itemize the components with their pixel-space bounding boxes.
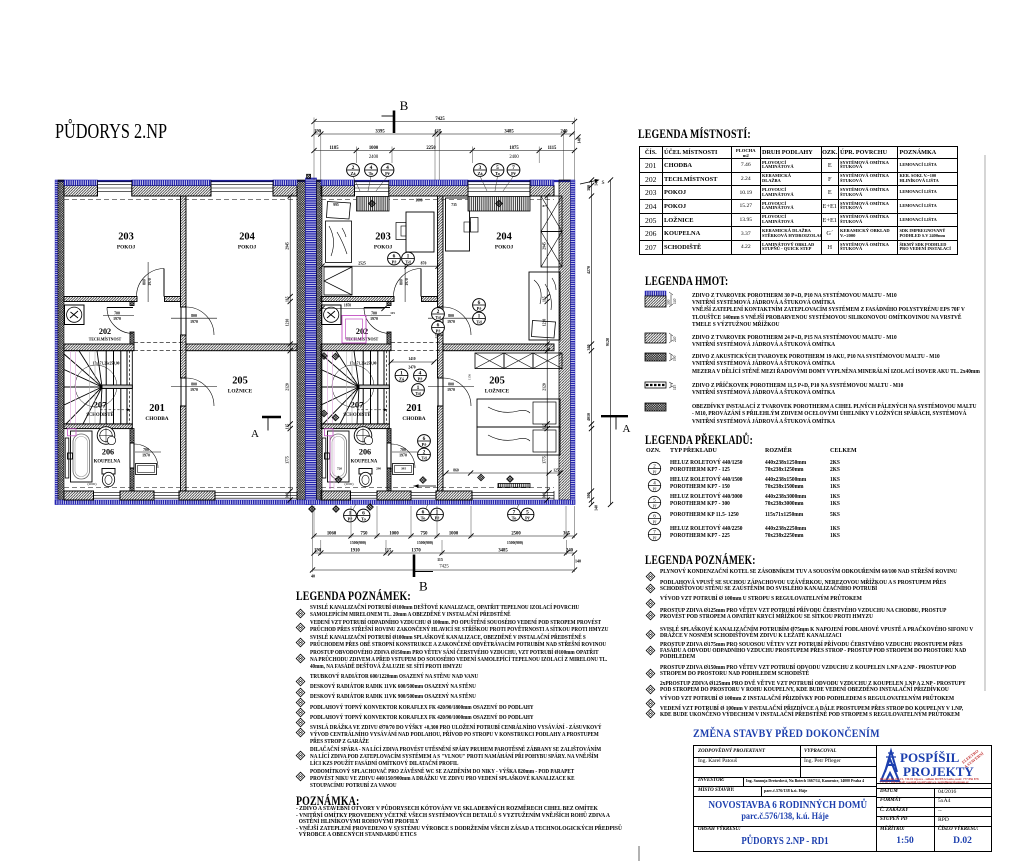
svg-text:1185: 1185	[329, 146, 339, 151]
svg-text:204: 204	[496, 232, 512, 243]
svg-text:To: To	[369, 171, 375, 176]
svg-text:870: 870	[421, 262, 427, 266]
svg-text:3485: 3485	[498, 548, 508, 553]
svg-text:TECH.MÍSTNOST: TECH.MÍSTNOST	[89, 337, 122, 342]
svg-text:115: 115	[673, 384, 677, 389]
svg-text:115: 115	[437, 557, 443, 562]
svg-text:125: 125	[553, 468, 559, 472]
svg-text:7425: 7425	[439, 565, 449, 570]
svg-text:To: To	[495, 171, 501, 176]
svg-text:4010: 4010	[586, 413, 591, 421]
svg-text:115: 115	[390, 311, 395, 315]
svg-text:1: 1	[400, 370, 403, 376]
svg-text:700: 700	[371, 311, 377, 315]
svg-text:17x171,26x250,00: 17x171,26x250,00	[93, 362, 120, 366]
svg-text:1970: 1970	[447, 320, 455, 324]
svg-text:6: 6	[423, 436, 426, 442]
svg-text:700: 700	[114, 311, 120, 315]
svg-text:Př: Př	[653, 504, 657, 509]
svg-text:205: 205	[232, 376, 248, 387]
svg-text:2: 2	[437, 309, 440, 315]
svg-text:800: 800	[448, 314, 454, 318]
svg-text:201: 201	[149, 403, 165, 414]
svg-text:POKOJ: POKOJ	[238, 245, 257, 251]
svg-text:Př: Př	[653, 487, 657, 492]
svg-text:800: 800	[399, 279, 403, 285]
svg-text:203: 203	[375, 232, 391, 243]
svg-text:Př: Př	[348, 517, 353, 522]
svg-text:735: 735	[451, 203, 457, 207]
svg-text:5: 5	[496, 165, 499, 171]
svg-text:1: 1	[417, 385, 420, 391]
svg-text:115: 115	[543, 296, 547, 302]
svg-text:750: 750	[361, 531, 369, 536]
svg-text:1210: 1210	[543, 319, 547, 327]
svg-text:S: S	[601, 180, 604, 186]
svg-text:1000: 1000	[389, 531, 399, 536]
svg-text:115: 115	[286, 424, 290, 430]
svg-text:40: 40	[311, 574, 315, 579]
svg-text:150: 150	[389, 467, 393, 472]
svg-text:290: 290	[376, 466, 381, 470]
svg-text:205: 205	[489, 376, 505, 387]
svg-text:Td: Td	[421, 456, 427, 461]
svg-text:800: 800	[191, 382, 197, 386]
svg-text:300: 300	[586, 493, 591, 499]
svg-text:Př: Př	[422, 442, 427, 447]
svg-text:7: 7	[513, 509, 516, 515]
svg-text:PŮDORYS 2.NP: PŮDORYS 2.NP	[55, 119, 167, 143]
svg-text:SCHODIŠTĚ: SCHODIŠTĚ	[343, 412, 370, 418]
svg-text:115: 115	[385, 548, 392, 553]
svg-text:Př: Př	[653, 519, 657, 524]
svg-text:800: 800	[448, 382, 454, 386]
svg-text:POKOJ: POKOJ	[117, 245, 136, 251]
svg-text:2470: 2470	[408, 366, 415, 370]
svg-text:190: 190	[314, 548, 322, 553]
svg-text:SCHODIŠTĚ: SCHODIŠTĚ	[86, 412, 113, 418]
svg-text:Td: Td	[405, 260, 411, 265]
svg-text:115: 115	[435, 129, 442, 134]
svg-text:7425: 7425	[435, 117, 445, 122]
svg-text:300: 300	[543, 493, 547, 499]
svg-text:Td: Td	[476, 320, 482, 325]
svg-text:Př: Př	[511, 171, 516, 176]
svg-text:Zá: Zá	[399, 377, 405, 382]
svg-text:203: 203	[118, 232, 134, 243]
svg-text:300: 300	[286, 493, 290, 499]
svg-text:Př: Př	[385, 171, 390, 176]
svg-text:B: B	[400, 98, 409, 113]
svg-text:Př: Př	[653, 536, 657, 541]
svg-text:140: 140	[575, 559, 581, 564]
svg-text:Př: Př	[477, 306, 482, 311]
svg-text:1210: 1210	[286, 319, 290, 327]
svg-text:1500(900): 1500(900)	[417, 541, 434, 545]
svg-text:700: 700	[143, 448, 149, 452]
svg-text:1775: 1775	[543, 456, 547, 464]
svg-text:340: 340	[586, 345, 591, 351]
svg-text:POSPÍŠIL: POSPÍŠIL	[900, 750, 960, 765]
svg-text:1970: 1970	[405, 278, 409, 286]
svg-text:300: 300	[667, 299, 671, 305]
svg-text:1060: 1060	[327, 531, 337, 536]
svg-text:1970: 1970	[142, 454, 150, 458]
svg-text:206: 206	[359, 448, 371, 457]
svg-text:750: 750	[421, 531, 429, 536]
svg-text:995: 995	[333, 203, 339, 207]
svg-text:1370: 1370	[411, 548, 421, 553]
svg-text:875: 875	[542, 204, 547, 208]
svg-text:(2000): (2000)	[87, 482, 96, 486]
svg-text:KOUPELNA: KOUPELNA	[94, 460, 121, 465]
svg-text:2: 2	[423, 449, 426, 455]
svg-text:1970: 1970	[399, 454, 407, 458]
svg-text:2: 2	[352, 165, 355, 171]
svg-text:CHODBA: CHODBA	[145, 416, 168, 422]
svg-text:Př: Př	[392, 260, 397, 265]
svg-text:3485: 3485	[504, 129, 514, 134]
svg-text:3: 3	[479, 165, 482, 171]
svg-text:2500: 2500	[511, 531, 521, 536]
svg-text:4270: 4270	[586, 266, 591, 274]
svg-text:5: 5	[526, 509, 529, 515]
svg-text:1875: 1875	[509, 146, 519, 151]
svg-text:300: 300	[586, 185, 591, 191]
svg-text:1500(900): 1500(900)	[350, 541, 367, 545]
svg-text:190: 190	[673, 355, 677, 361]
svg-text:1970: 1970	[148, 278, 152, 286]
svg-text:To: To	[421, 516, 427, 521]
svg-text:1500(900): 1500(900)	[507, 541, 524, 545]
svg-text:140: 140	[673, 298, 677, 304]
svg-text:2120: 2120	[543, 383, 547, 391]
svg-text:2120: 2120	[286, 383, 290, 391]
svg-text:1970: 1970	[370, 317, 378, 321]
svg-text:Zá: Zá	[477, 171, 483, 176]
svg-text:240: 240	[566, 548, 574, 553]
svg-text:700: 700	[400, 448, 406, 452]
svg-text:3395: 3395	[375, 129, 385, 134]
svg-text:140: 140	[595, 180, 599, 186]
svg-text:2400: 2400	[369, 155, 379, 160]
svg-text:2945: 2945	[543, 242, 547, 250]
svg-text:2525: 2525	[358, 262, 366, 266]
svg-text:6: 6	[422, 509, 425, 515]
svg-text:LOŽNICE: LOŽNICE	[228, 387, 253, 395]
svg-text:Př: Př	[653, 470, 657, 475]
svg-text:1000: 1000	[449, 531, 459, 536]
svg-text:207: 207	[93, 400, 107, 410]
svg-text:6: 6	[478, 300, 481, 306]
svg-text:POKOJ: POKOJ	[495, 245, 514, 251]
svg-text:4: 4	[419, 370, 422, 376]
svg-text:190: 190	[314, 129, 322, 134]
svg-text:206: 206	[102, 448, 114, 457]
svg-text:1150: 1150	[468, 373, 472, 380]
svg-text:Td: Td	[415, 391, 421, 396]
svg-text:1600: 1600	[415, 199, 422, 203]
svg-text:To: To	[361, 517, 367, 522]
svg-text:6: 6	[362, 510, 365, 516]
svg-text:9120: 9120	[605, 338, 610, 346]
svg-text:115: 115	[286, 296, 290, 302]
svg-text:KOUPELNA: KOUPELNA	[351, 460, 378, 465]
svg-text:240: 240	[673, 336, 677, 342]
svg-text:Př: Př	[436, 329, 441, 334]
svg-text:1970: 1970	[190, 388, 198, 392]
svg-text:POKOJ: POKOJ	[374, 245, 393, 251]
svg-text:201: 201	[406, 403, 422, 414]
svg-text:4: 4	[370, 165, 373, 171]
svg-text:115: 115	[543, 424, 547, 430]
svg-text:800: 800	[191, 314, 197, 318]
svg-text:1775: 1775	[286, 456, 290, 464]
svg-text:395: 395	[401, 466, 406, 470]
svg-text:1970: 1970	[113, 317, 121, 321]
svg-text:1410: 1410	[408, 357, 415, 361]
svg-text:Př: Př	[418, 377, 423, 382]
svg-text:1870: 1870	[344, 304, 351, 308]
svg-text:1115: 1115	[548, 146, 557, 151]
svg-text:800: 800	[142, 279, 146, 285]
svg-text:7: 7	[512, 165, 515, 171]
svg-text:365: 365	[563, 531, 571, 536]
svg-text:204: 204	[239, 232, 255, 243]
svg-text:2945: 2945	[286, 242, 290, 250]
svg-text:(2000): (2000)	[344, 482, 353, 486]
svg-text:6: 6	[393, 253, 396, 259]
svg-text:A: A	[623, 423, 631, 435]
svg-text:720: 720	[337, 466, 342, 470]
svg-text:1970: 1970	[447, 388, 455, 392]
svg-text:240: 240	[561, 129, 569, 134]
svg-text:1: 1	[407, 253, 410, 259]
svg-text:Td: Td	[435, 315, 441, 320]
svg-text:Zá: Zá	[350, 171, 356, 176]
svg-text:4: 4	[386, 165, 389, 171]
svg-text:6: 6	[437, 322, 440, 328]
svg-text:2400: 2400	[509, 155, 519, 160]
svg-text:140: 140	[595, 505, 599, 511]
svg-text:1000: 1000	[369, 146, 379, 151]
svg-text:1910: 1910	[350, 548, 360, 553]
svg-text:202: 202	[99, 327, 111, 336]
svg-text:1970: 1970	[190, 320, 198, 324]
svg-text:CHODBA: CHODBA	[402, 416, 425, 422]
svg-text:A: A	[251, 428, 259, 440]
svg-text:To: To	[512, 516, 518, 521]
svg-text:207: 207	[350, 400, 364, 410]
svg-text:17x171,26x250,00: 17x171,26x250,00	[350, 362, 377, 366]
svg-text:LOŽNICE: LOŽNICE	[485, 387, 510, 395]
svg-text:860: 860	[453, 468, 459, 472]
svg-text:1: 1	[478, 313, 481, 319]
svg-text:Př: Př	[525, 516, 530, 521]
